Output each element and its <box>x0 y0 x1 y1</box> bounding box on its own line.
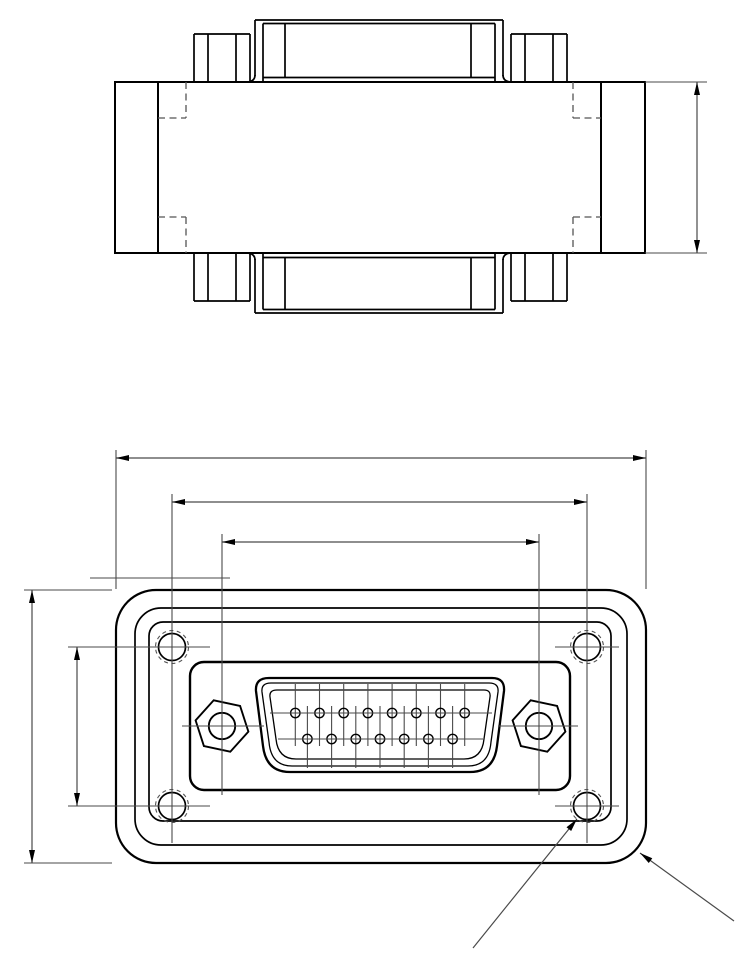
adapter-body-outline <box>115 82 645 253</box>
dimension-arrowhead <box>526 539 539 545</box>
leader-radius-callout <box>638 851 734 921</box>
dimension-hole-spacing-x <box>172 499 587 505</box>
leader-line <box>640 853 734 921</box>
technical-drawing <box>0 0 750 967</box>
dimension-overall-height <box>24 590 112 863</box>
front-view <box>68 494 646 863</box>
dimension-jackscrew-spacing <box>222 539 539 545</box>
dimension-arrowhead <box>29 590 35 603</box>
fillet-arc <box>248 253 255 260</box>
dimension-arrowhead <box>116 455 129 461</box>
fillet-arc <box>503 253 510 260</box>
dimension-arrowhead <box>172 499 185 505</box>
leader-thread-callout <box>473 817 579 948</box>
dimension-body-depth <box>645 82 707 253</box>
dimension-overall-width <box>116 450 646 589</box>
top-view <box>115 20 645 313</box>
fillet-arc <box>503 75 510 82</box>
leader-arrowhead <box>638 851 652 863</box>
fillet-arc <box>248 75 255 82</box>
dimension-arrowhead <box>222 539 235 545</box>
dimension-arrowhead <box>74 793 80 806</box>
dimension-arrowhead <box>74 647 80 660</box>
dimension-hole-spacing-y <box>74 647 80 806</box>
dimension-arrowhead <box>574 499 587 505</box>
dimension-arrowhead <box>633 455 646 461</box>
leader-line <box>473 819 577 948</box>
dimension-arrowhead <box>694 82 700 95</box>
dimension-arrowhead <box>29 850 35 863</box>
drawing-sheet <box>0 0 750 967</box>
dimension-arrowhead <box>694 240 700 253</box>
